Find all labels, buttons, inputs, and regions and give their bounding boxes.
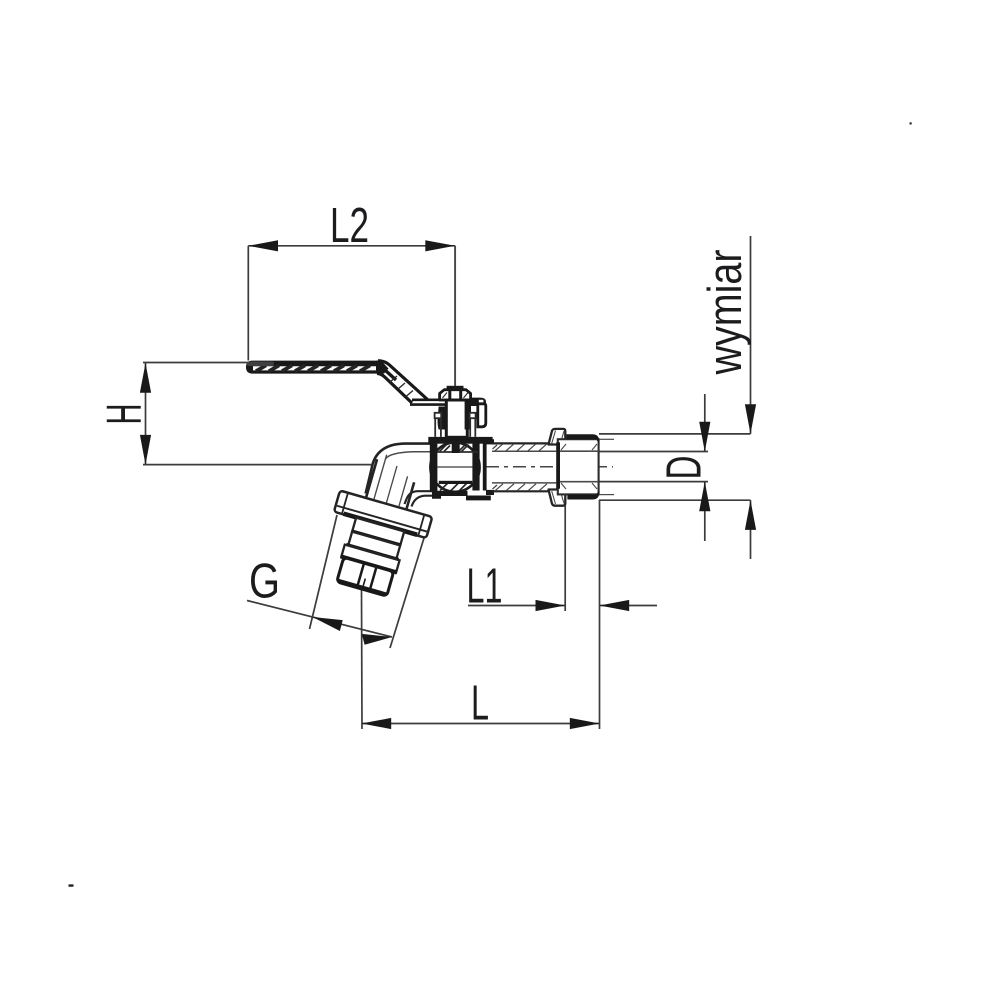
svg-text:H: H: [97, 404, 152, 425]
svg-text:L1: L1: [467, 559, 503, 614]
svg-text:wymiar: wymiar: [698, 250, 751, 376]
svg-text:L: L: [471, 676, 489, 731]
svg-text:L2: L2: [330, 198, 369, 253]
svg-text:G: G: [249, 555, 280, 609]
svg-text:D: D: [657, 456, 712, 480]
